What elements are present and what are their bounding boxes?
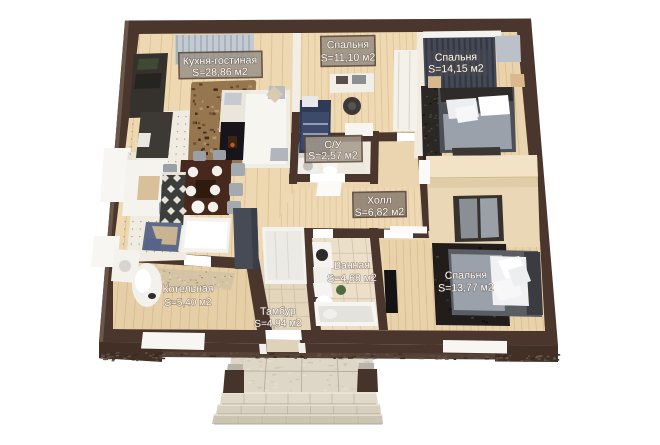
svg-text:Холл: Холл [367, 194, 392, 206]
svg-text:S=4,94 м2: S=4,94 м2 [254, 318, 302, 330]
svg-text:Ванная: Ванная [334, 259, 370, 272]
svg-text:S=6,82 м2: S=6,82 м2 [355, 206, 405, 219]
svg-text:Котельная: Котельная [162, 283, 213, 296]
svg-text:S=5,40 м2: S=5,40 м2 [164, 297, 212, 309]
svg-text:S=13,77 м2: S=13,77 м2 [438, 282, 494, 295]
svg-text:S=28,86 м2: S=28,86 м2 [192, 66, 248, 79]
svg-text:Спальня: Спальня [327, 39, 369, 52]
svg-text:Тамбур: Тамбур [260, 305, 296, 318]
svg-text:S=2,57 м2: S=2,57 м2 [308, 150, 358, 163]
svg-text:S=11,10 м2: S=11,10 м2 [321, 52, 376, 65]
svg-text:S=4,68 м2: S=4,68 м2 [327, 272, 377, 285]
svg-text:Спальня: Спальня [445, 269, 487, 282]
svg-text:S=14,15 м2: S=14,15 м2 [428, 63, 484, 76]
